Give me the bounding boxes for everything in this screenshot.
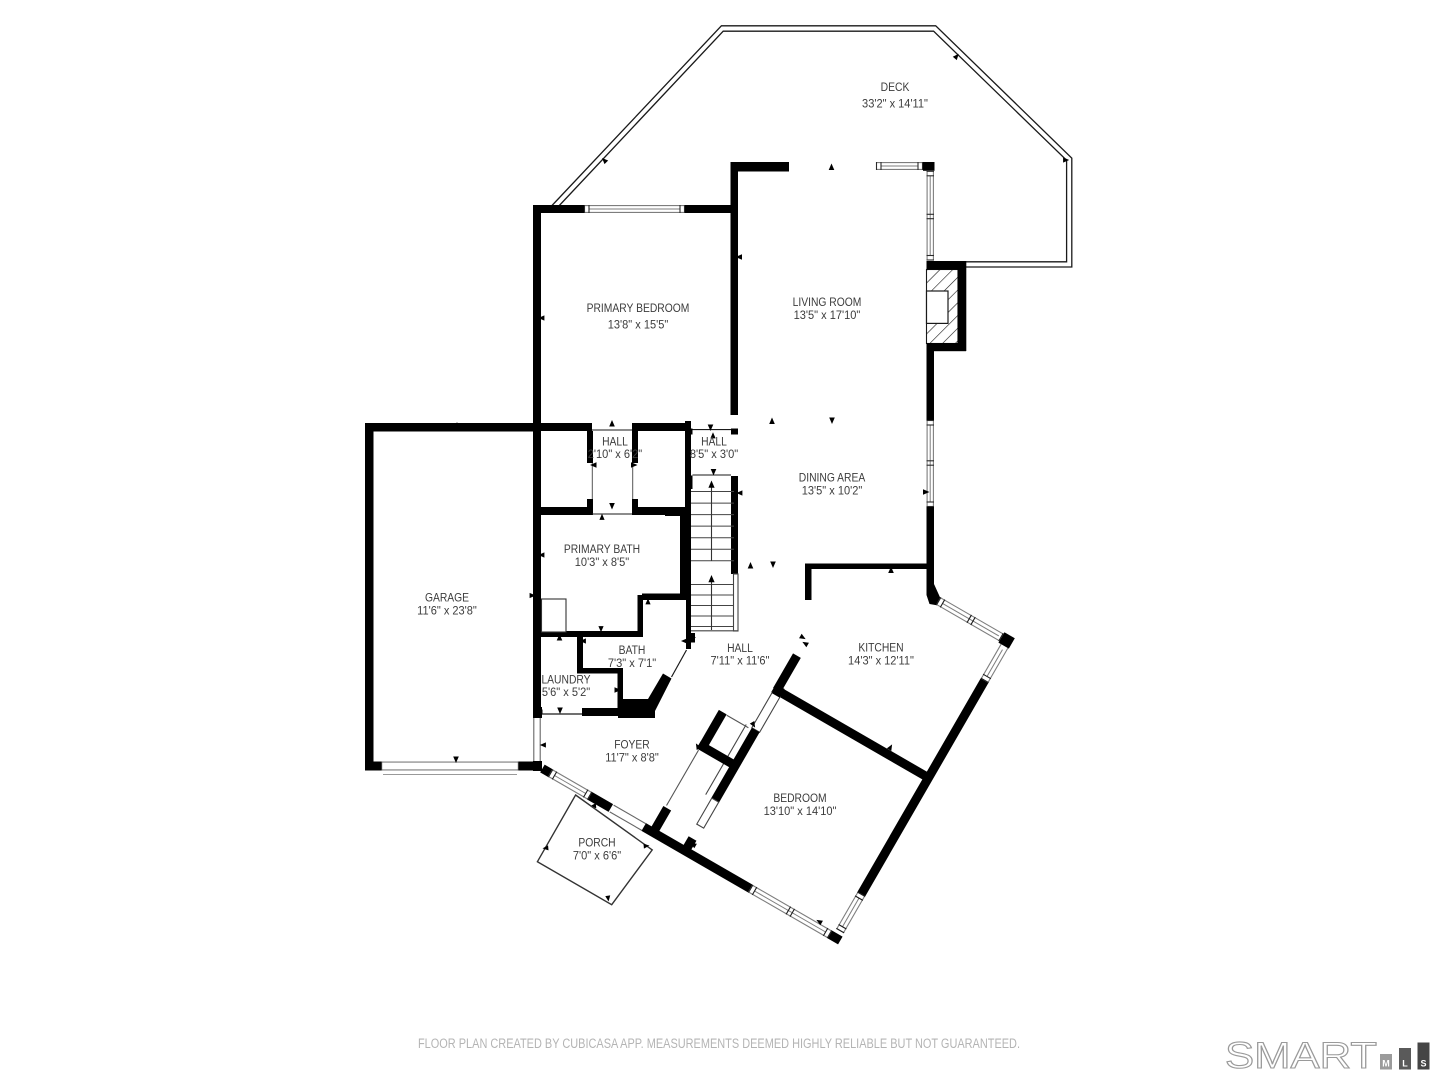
- svg-text:7'3" x 7'1": 7'3" x 7'1": [608, 656, 656, 670]
- svg-text:13'8" x 15'5": 13'8" x 15'5": [608, 318, 669, 332]
- svg-text:33'2" x 14'11": 33'2" x 14'11": [862, 97, 928, 111]
- svg-text:L: L: [1402, 1059, 1408, 1069]
- svg-text:10'3" x 8'5": 10'3" x 8'5": [575, 555, 629, 569]
- svg-text:11'7" x 8'8": 11'7" x 8'8": [605, 750, 659, 764]
- svg-text:DINING AREA: DINING AREA: [799, 471, 866, 485]
- svg-text:7'11" x 11'6": 7'11" x 11'6": [711, 653, 770, 667]
- svg-text:DECK: DECK: [881, 80, 910, 94]
- svg-text:PRIMARY BEDROOM: PRIMARY BEDROOM: [587, 301, 690, 315]
- svg-text:13'5" x 17'10": 13'5" x 17'10": [794, 308, 861, 322]
- svg-text:FLOOR PLAN CREATED BY CUBICASA: FLOOR PLAN CREATED BY CUBICASA APP. MEAS…: [418, 1036, 1020, 1051]
- svg-text:14'3" x 12'11": 14'3" x 12'11": [848, 653, 914, 667]
- svg-text:2'10" x 6'2": 2'10" x 6'2": [588, 447, 642, 461]
- svg-text:13'5" x 10'2": 13'5" x 10'2": [802, 483, 863, 497]
- svg-text:13'10" x 14'10": 13'10" x 14'10": [764, 804, 837, 818]
- svg-text:KITCHEN: KITCHEN: [858, 641, 903, 655]
- svg-text:SMART: SMART: [1225, 1035, 1377, 1076]
- svg-text:GARAGE: GARAGE: [425, 591, 469, 605]
- svg-text:5'6" x 5'2": 5'6" x 5'2": [542, 685, 590, 699]
- svg-text:BEDROOM: BEDROOM: [773, 791, 826, 805]
- svg-text:8'5" x 3'0": 8'5" x 3'0": [690, 447, 738, 461]
- svg-text:PRIMARY BATH: PRIMARY BATH: [564, 542, 640, 556]
- svg-text:FOYER: FOYER: [614, 738, 650, 752]
- svg-text:PORCH: PORCH: [578, 836, 615, 850]
- svg-text:7'0" x 6'6": 7'0" x 6'6": [573, 848, 621, 862]
- svg-text:M: M: [1382, 1059, 1390, 1069]
- svg-text:S: S: [1420, 1059, 1426, 1069]
- svg-text:BATH: BATH: [619, 643, 646, 657]
- svg-text:LIVING ROOM: LIVING ROOM: [793, 295, 862, 309]
- svg-text:11'6" x 23'8": 11'6" x 23'8": [417, 603, 477, 617]
